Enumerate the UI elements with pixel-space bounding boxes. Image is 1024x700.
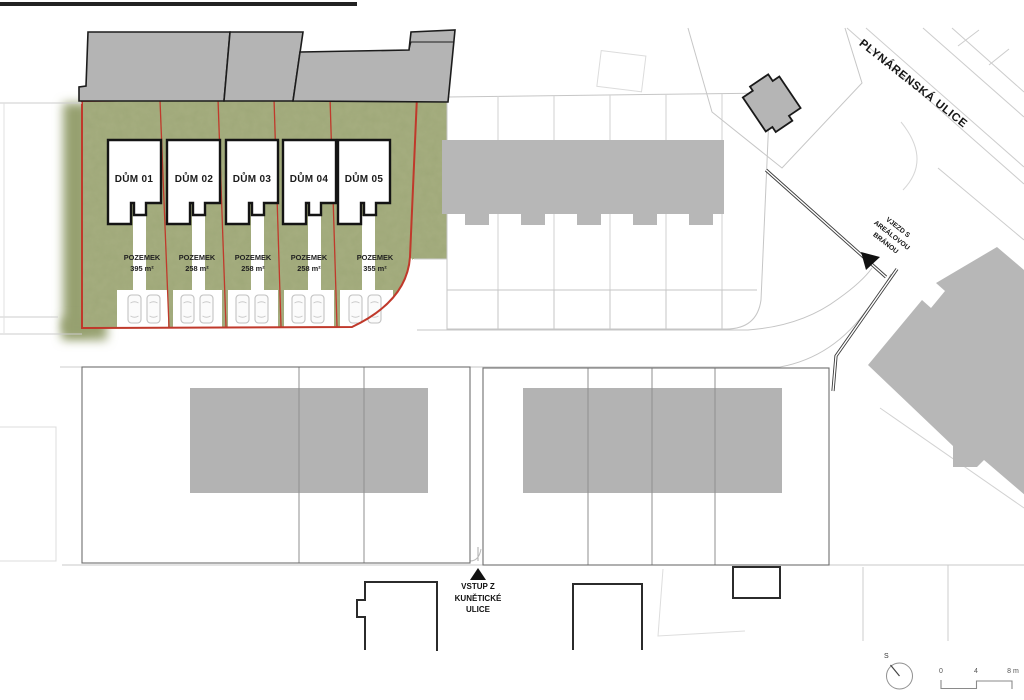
house-label-02: DŮM 02 (166, 174, 222, 185)
plot-area-value: 395 m² (112, 263, 172, 274)
scale-bar (941, 680, 1012, 689)
north-needle-icon (891, 665, 900, 676)
plot-area-label-05: POZEMEK 355 m² (345, 252, 405, 274)
south-plots (82, 367, 829, 565)
plot-area-value: 258 m² (167, 263, 227, 274)
house-label-03: DŮM 03 (224, 174, 280, 185)
plot-word: POZEMEK (167, 252, 227, 263)
north-indicator (887, 663, 913, 689)
plot-word: POZEMEK (345, 252, 405, 263)
plot-area-label-02: POZEMEK 258 m² (167, 252, 227, 274)
plot-word: POZEMEK (223, 252, 283, 263)
plot-word: POZEMEK (112, 252, 172, 263)
scale-tick-4: 4 (971, 668, 981, 675)
entrance-annotation-line: VSTUP Z (435, 581, 521, 593)
street-buildings (357, 567, 780, 651)
entrance-annotation-line: ULICE (435, 604, 521, 616)
plot-area-value: 258 m² (223, 263, 283, 274)
entrance-annotation: VSTUP Z KUNĚTICKÉ ULICE (435, 581, 521, 616)
plot-area-label-01: POZEMEK 395 m² (112, 252, 172, 274)
plot-area-value: 258 m² (279, 263, 339, 274)
scale-tick-8m: 8 m (1000, 668, 1024, 675)
site-plan: PLYNÁRENSKÁ ULICE VJEZD S AREÁLOVOU BRÁN… (0, 0, 1024, 700)
house-label-04: DŮM 04 (281, 174, 337, 185)
top-buildings (79, 30, 455, 102)
house-label-05: DŮM 05 (336, 174, 392, 185)
entrance-arrow-icon (470, 568, 486, 580)
industrial-building (868, 247, 1024, 508)
plot-area-label-03: POZEMEK 258 m² (223, 252, 283, 274)
entrance-annotation-line: KUNĚTICKÉ (435, 593, 521, 605)
plot-area-label-04: POZEMEK 258 m² (279, 252, 339, 274)
plot-area-value: 355 m² (345, 263, 405, 274)
neighbour-house-row (442, 140, 724, 225)
street-corner-building (740, 70, 804, 137)
scale-tick-0: 0 (936, 668, 946, 675)
north-label: S (884, 653, 889, 660)
plot-word: POZEMEK (279, 252, 339, 263)
top-edge-bar (0, 2, 357, 6)
house-label-01: DŮM 01 (106, 174, 162, 185)
